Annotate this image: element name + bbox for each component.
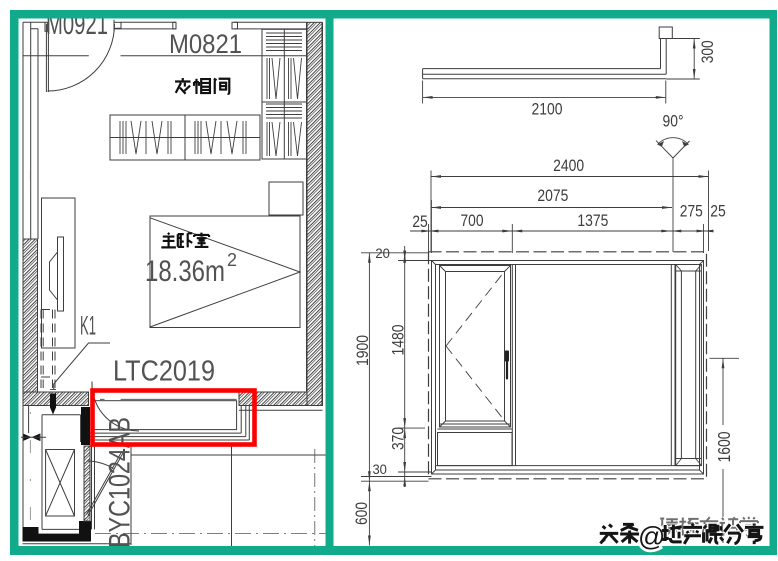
svg-text:25: 25: [710, 202, 726, 220]
svg-text:18.36m: 18.36m: [145, 255, 225, 288]
svg-text:1375: 1375: [577, 212, 608, 230]
svg-text:@: @: [638, 522, 665, 552]
svg-text:LTC2019: LTC2019: [113, 356, 215, 388]
svg-text:1900: 1900: [354, 335, 372, 366]
svg-text:370: 370: [390, 427, 408, 450]
svg-text:2100: 2100: [532, 101, 563, 119]
svg-text:2075: 2075: [537, 187, 568, 205]
svg-text:K1: K1: [80, 311, 96, 341]
svg-text:1600: 1600: [714, 431, 734, 462]
svg-text:300: 300: [699, 40, 717, 63]
svg-text:1480: 1480: [390, 325, 408, 356]
svg-text:25: 25: [412, 213, 428, 231]
svg-text:2: 2: [227, 250, 237, 270]
svg-text:275: 275: [680, 202, 703, 220]
svg-text:90°: 90°: [663, 113, 684, 131]
svg-text:BYC1024AB: BYC1024AB: [104, 417, 137, 548]
svg-text:30: 30: [372, 462, 387, 477]
svg-text:600: 600: [353, 502, 371, 525]
svg-text:700: 700: [461, 212, 484, 230]
svg-text:20: 20: [375, 246, 390, 261]
svg-text:2400: 2400: [553, 157, 584, 175]
svg-text:M0821: M0821: [169, 29, 242, 59]
